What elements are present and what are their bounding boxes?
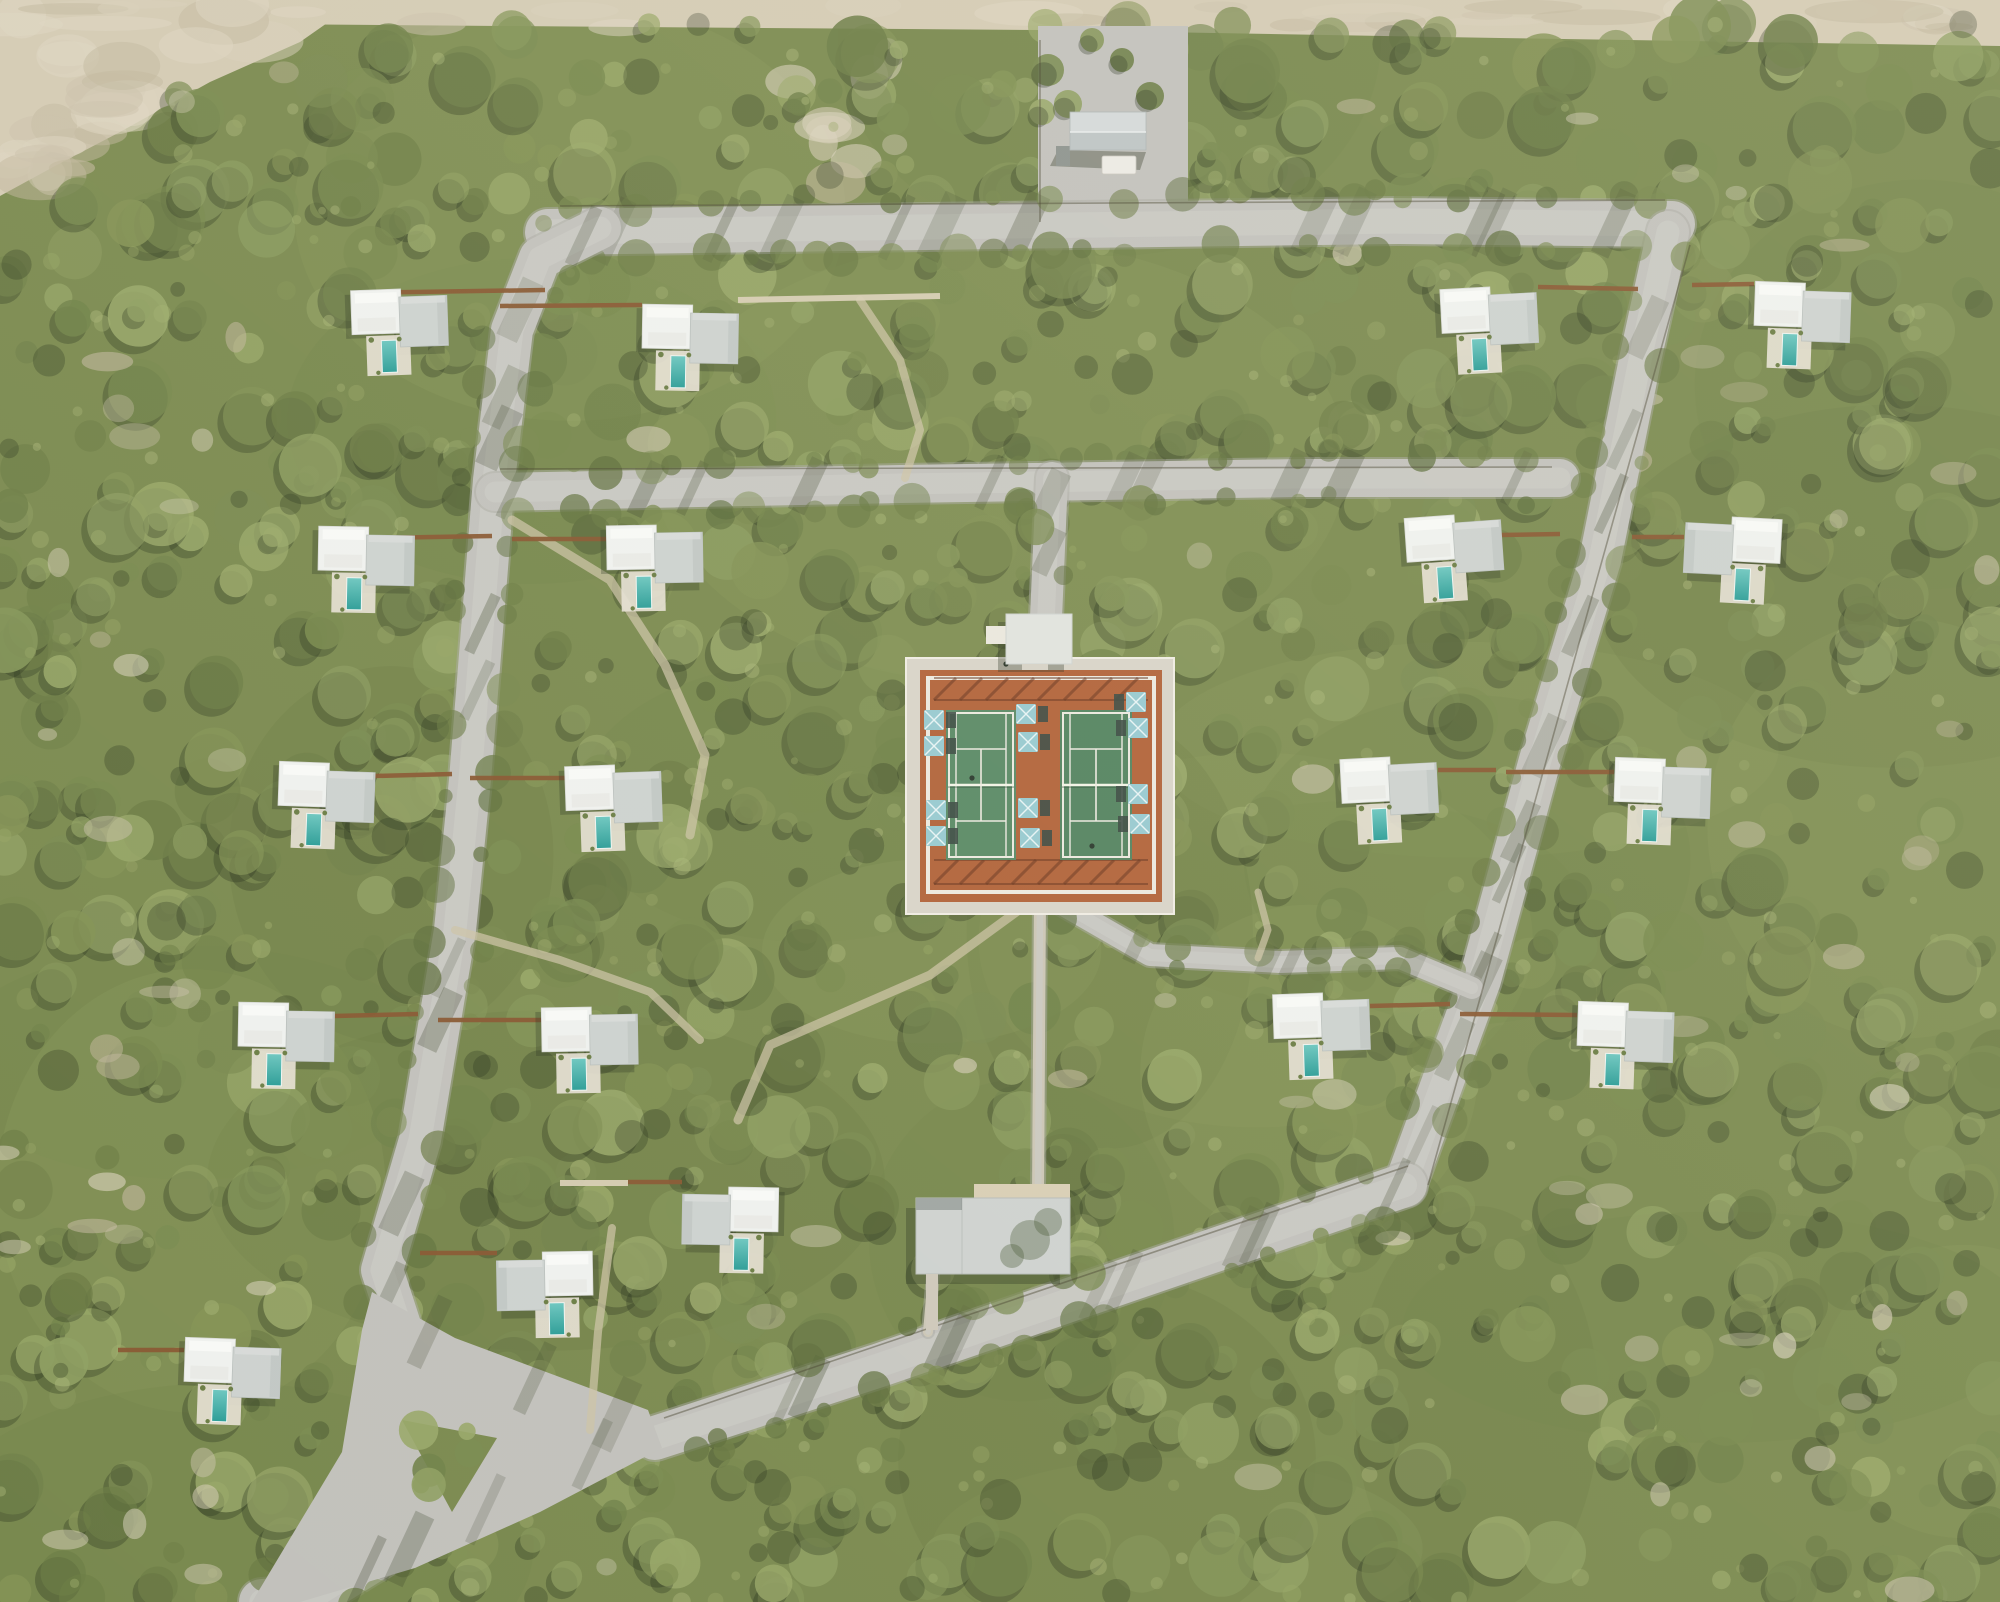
resort-master-plan <box>0 0 2000 1602</box>
sunlight-overlay <box>0 0 2000 1602</box>
aerial-site-render <box>0 0 2000 1602</box>
